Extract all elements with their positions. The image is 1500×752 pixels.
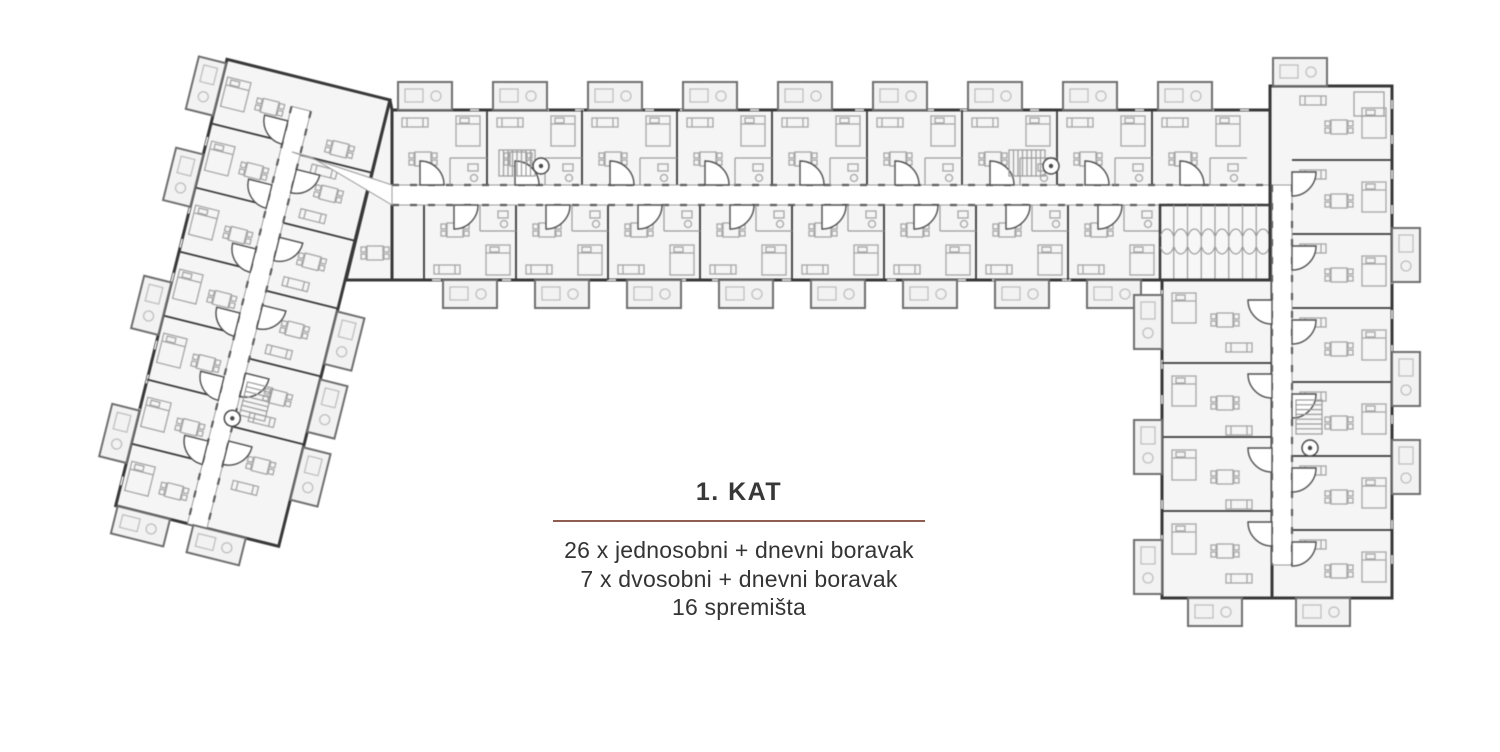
- legend-line-2: 7 x dvosobni + dnevni boravak: [513, 565, 965, 594]
- floor-plan: [0, 0, 1500, 752]
- floor-title: 1. KAT: [513, 478, 965, 507]
- balcony: [1392, 228, 1420, 282]
- balcony: [778, 82, 832, 110]
- section-marker-icon: [1302, 440, 1318, 456]
- balcony: [1273, 58, 1327, 86]
- legend-line-3: 16 spremišta: [513, 593, 965, 622]
- balcony: [588, 82, 642, 110]
- left-wing: [82, 53, 417, 581]
- balcony: [1087, 280, 1141, 308]
- storage-room: [1160, 205, 1270, 280]
- balcony: [1392, 352, 1420, 406]
- balcony: [535, 280, 589, 308]
- balcony: [1134, 295, 1162, 349]
- section-marker-icon: [533, 158, 549, 174]
- balcony: [493, 82, 547, 110]
- balcony: [1134, 540, 1162, 594]
- balcony: [968, 82, 1022, 110]
- balcony: [1134, 420, 1162, 474]
- balcony: [903, 280, 957, 308]
- balcony: [398, 82, 452, 110]
- section-marker-icon: [1043, 158, 1059, 174]
- balcony: [1392, 440, 1420, 494]
- corridor: [392, 185, 1292, 205]
- legend-divider: [553, 520, 925, 522]
- legend: 1. KAT 26 x jednosobni + dnevni boravak …: [513, 478, 965, 622]
- balcony: [995, 280, 1049, 308]
- balcony: [873, 82, 927, 110]
- balcony: [1296, 598, 1350, 626]
- balcony: [1158, 82, 1212, 110]
- balcony: [627, 280, 681, 308]
- balcony: [811, 280, 865, 308]
- balcony: [1188, 598, 1242, 626]
- top-wing: [392, 82, 1292, 308]
- legend-line-1: 26 x jednosobni + dnevni boravak: [513, 536, 965, 565]
- balcony: [683, 82, 737, 110]
- corridor: [1272, 185, 1292, 565]
- balcony: [1063, 82, 1117, 110]
- balcony: [443, 280, 497, 308]
- balcony: [719, 280, 773, 308]
